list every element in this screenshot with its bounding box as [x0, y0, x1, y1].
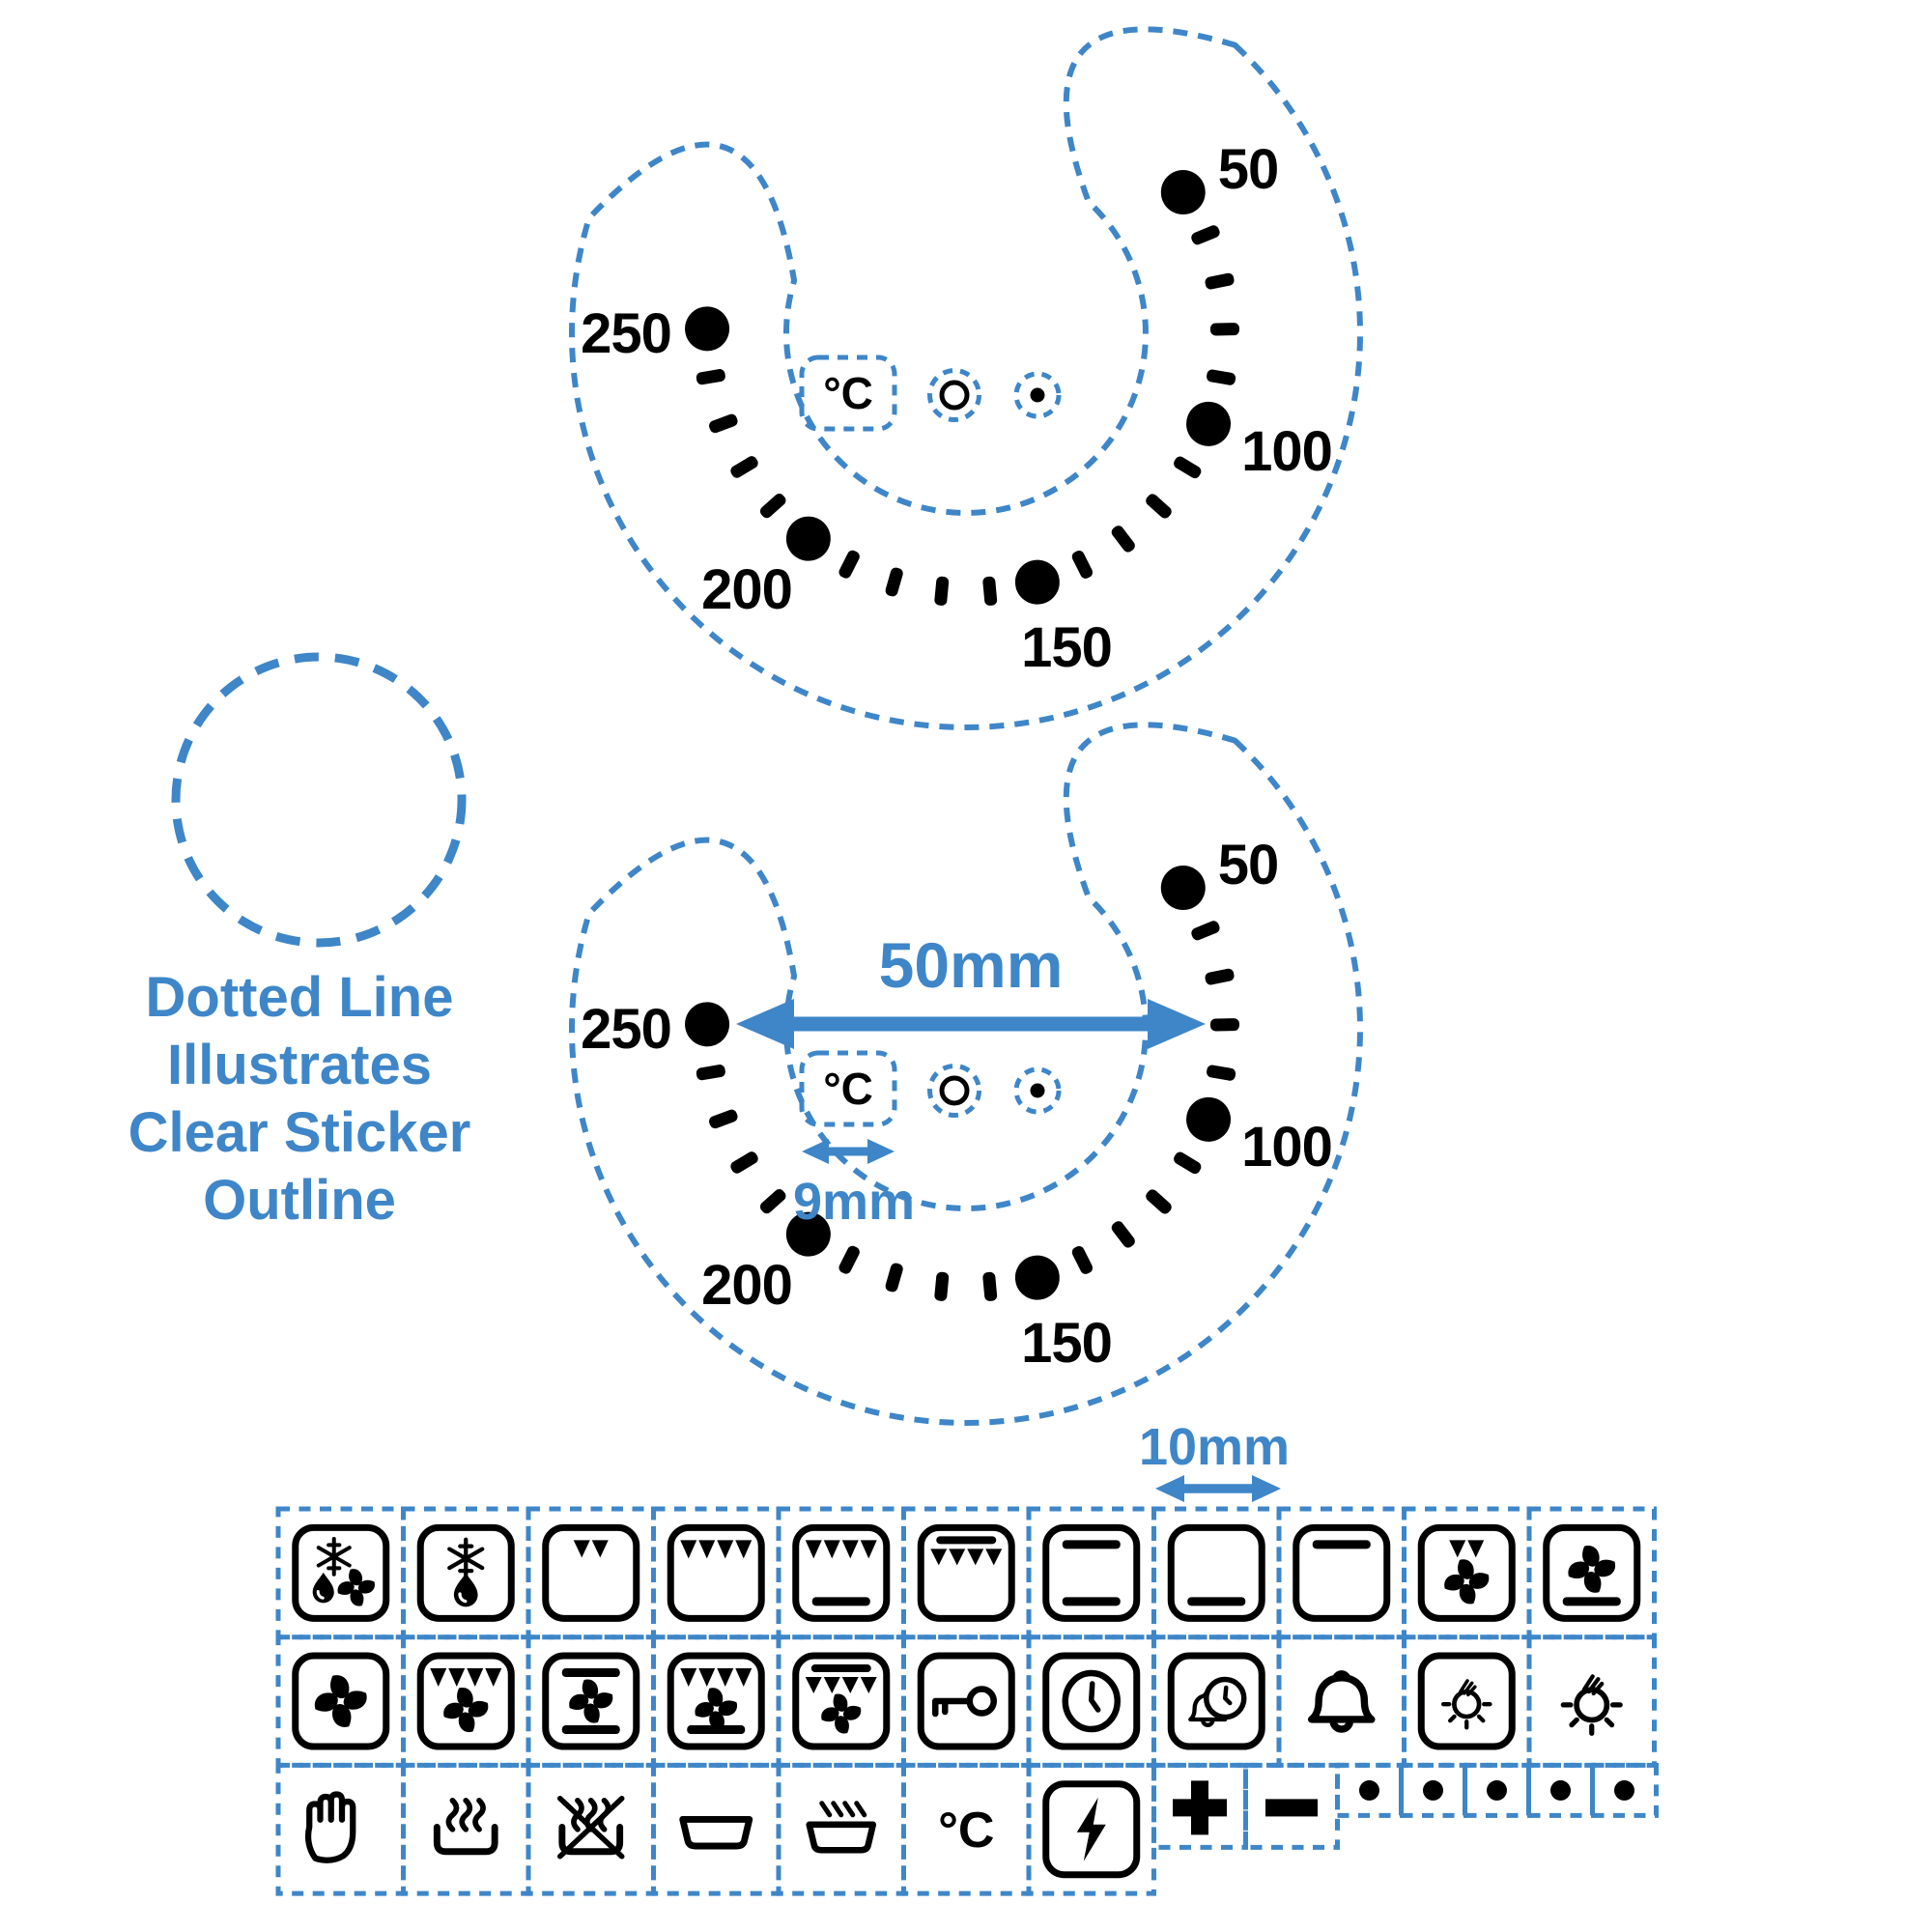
dimension-50mm-label: 50mm: [879, 929, 1064, 1001]
celsius-icon: [938, 1803, 994, 1859]
sticker-cell-top-heat: [1279, 1509, 1405, 1637]
sticker-cell-dot: [1529, 1765, 1593, 1815]
alarm-clock-icon: [1171, 1656, 1262, 1747]
sticker-cell-top-fan-bottom: [528, 1637, 654, 1766]
bell-icon: [1312, 1674, 1372, 1730]
dial-label-100: 100: [1241, 1116, 1332, 1179]
no-steam-icon: [560, 1799, 622, 1857]
sticker-cell-grill-small-fan: [1405, 1509, 1530, 1637]
arrowhead-left-icon: [802, 1139, 829, 1164]
sticker-cell-steam: [404, 1765, 529, 1893]
clear-sticker-circle-outline: [176, 657, 462, 943]
dial-label-150: 150: [1021, 616, 1112, 679]
sticker-cell-key: [904, 1637, 1030, 1766]
dimension-10mm-label: 10mm: [1139, 1418, 1290, 1476]
bottom-dial: 50 100 150 200 250 °C: [572, 724, 1360, 1423]
sticker-cell-dot: [1465, 1765, 1529, 1815]
sticker-cell-dot: [1402, 1765, 1465, 1815]
sticker-cell-lamp-framed: [1405, 1637, 1530, 1766]
sticker-cell-top-heat-grill: [904, 1509, 1030, 1637]
sticker-cell-grill-fan-bottom: [654, 1637, 780, 1766]
caption-line-4: Outline: [203, 1169, 396, 1232]
arrowhead-left-icon: [1155, 1475, 1184, 1502]
sticker-cell-power: [1029, 1765, 1154, 1893]
dot-icon: [1359, 1780, 1379, 1801]
sticker-cell-clock: [1029, 1637, 1154, 1766]
bottom-heat-icon: [1171, 1527, 1262, 1618]
dial-celsius-label: °C: [823, 368, 873, 418]
grill-fan-icon: [420, 1656, 511, 1747]
dot-icon: [1550, 1780, 1571, 1801]
dimension-10mm: 10mm: [1139, 1418, 1290, 1502]
fan-bottom-heat-icon: [1547, 1527, 1637, 1618]
dial-label-50: 50: [1218, 138, 1279, 201]
sticker-symbol-grid: [278, 1509, 1657, 1893]
fan-icon: [296, 1656, 386, 1747]
dimension-9mm-label: 9mm: [793, 1173, 915, 1231]
sticker-cell-bottom-heat: [1154, 1509, 1280, 1637]
sticker-cell-lamp: [1529, 1637, 1655, 1766]
sticker-cell-grill-small: [528, 1509, 654, 1637]
dimension-9mm: 9mm: [793, 1139, 915, 1231]
plus-icon: [1173, 1780, 1227, 1834]
caption-line-3: Clear Sticker: [128, 1101, 471, 1164]
sticker-cell-defrost-fan: [278, 1509, 404, 1637]
dial-label-50: 50: [1218, 834, 1279, 896]
sticker-cell-top-bottom-heat: [1029, 1509, 1154, 1637]
sticker-cell-grill-bottom-heat: [779, 1509, 904, 1637]
top-grill-fan-icon: [796, 1656, 887, 1747]
top-dial: 50 100 150 200 250 °C: [572, 29, 1360, 727]
caption: Dotted Line Illustrates Clear Sticker Ou…: [128, 966, 471, 1232]
grill-bottom-heat-icon: [796, 1527, 887, 1618]
top-fan-bottom-icon: [546, 1656, 637, 1747]
hand-icon: [308, 1795, 353, 1861]
lamp-icon: [1563, 1676, 1620, 1733]
arrowhead-right-icon: [1252, 1475, 1281, 1502]
arrowhead-right-icon: [1148, 999, 1206, 1049]
grill-fan-bottom-icon: [670, 1656, 761, 1747]
sticker-cell-bell: [1279, 1637, 1405, 1766]
arrowhead-left-icon: [736, 999, 794, 1049]
dial-celsius-label: °C: [823, 1064, 873, 1114]
dial-label-250: 250: [581, 998, 671, 1061]
oven-dial-sticker-diagram: °C Dotted Line Illustrates Clear Sticker…: [0, 0, 1932, 1932]
sticker-cell-hand: [278, 1765, 404, 1893]
grill-icon: [670, 1527, 761, 1618]
sticker-cell-grill-fan: [404, 1637, 529, 1766]
sticker-cell-grill: [654, 1509, 780, 1637]
top-heat-grill-icon: [921, 1527, 1011, 1618]
top-heat-icon: [1296, 1527, 1387, 1618]
dot-icon: [1614, 1780, 1634, 1801]
sticker-cell-defrost: [404, 1509, 529, 1637]
sticker-cell-no-steam: [528, 1765, 654, 1893]
dial-label-100: 100: [1241, 420, 1332, 483]
dot-icon: [1423, 1780, 1443, 1801]
sticker-cell-top-grill-fan: [779, 1637, 904, 1766]
sticker-cell-dot: [1338, 1765, 1402, 1815]
sticker-cell-dot: [1593, 1765, 1657, 1815]
caption-line-2: Illustrates: [167, 1034, 432, 1096]
dimension-50mm: 50mm: [736, 929, 1206, 1049]
top-bottom-heat-icon: [1046, 1527, 1137, 1618]
sticker-cell-hot-dish: [779, 1765, 904, 1893]
arrowhead-right-icon: [867, 1139, 895, 1164]
dot-icon: [1487, 1780, 1507, 1801]
clock-icon: [1046, 1656, 1137, 1747]
defrost-fan-icon: [296, 1527, 386, 1618]
hot-dish-icon: [810, 1804, 873, 1851]
sticker-cell-alarm-clock: [1154, 1637, 1280, 1766]
dial-label-150: 150: [1021, 1312, 1112, 1375]
dish-icon: [683, 1819, 750, 1846]
sticker-cell-dish: [654, 1765, 780, 1893]
sticker-cell-celsius: [904, 1765, 1030, 1893]
sticker-cell-fan: [278, 1637, 404, 1766]
minus-icon: [1265, 1799, 1318, 1816]
sticker-cell-minus: [1246, 1765, 1338, 1847]
grill-small-icon: [546, 1527, 637, 1618]
sticker-cell-fan-bottom-heat: [1529, 1509, 1655, 1637]
power-icon: [1046, 1784, 1137, 1875]
grill-small-fan-icon: [1421, 1527, 1512, 1618]
dial-label-200: 200: [701, 1254, 792, 1317]
diagram-canvas: °C Dotted Line Illustrates Clear Sticker…: [0, 0, 1932, 1932]
caption-line-1: Dotted Line: [146, 966, 454, 1029]
steam-icon: [437, 1801, 495, 1852]
key-icon: [921, 1656, 1011, 1747]
defrost-icon: [420, 1527, 511, 1618]
dial-label-250: 250: [581, 302, 671, 365]
sticker-cell-plus: [1154, 1765, 1246, 1847]
dial-label-200: 200: [701, 558, 792, 621]
lamp-framed-icon: [1421, 1656, 1512, 1747]
